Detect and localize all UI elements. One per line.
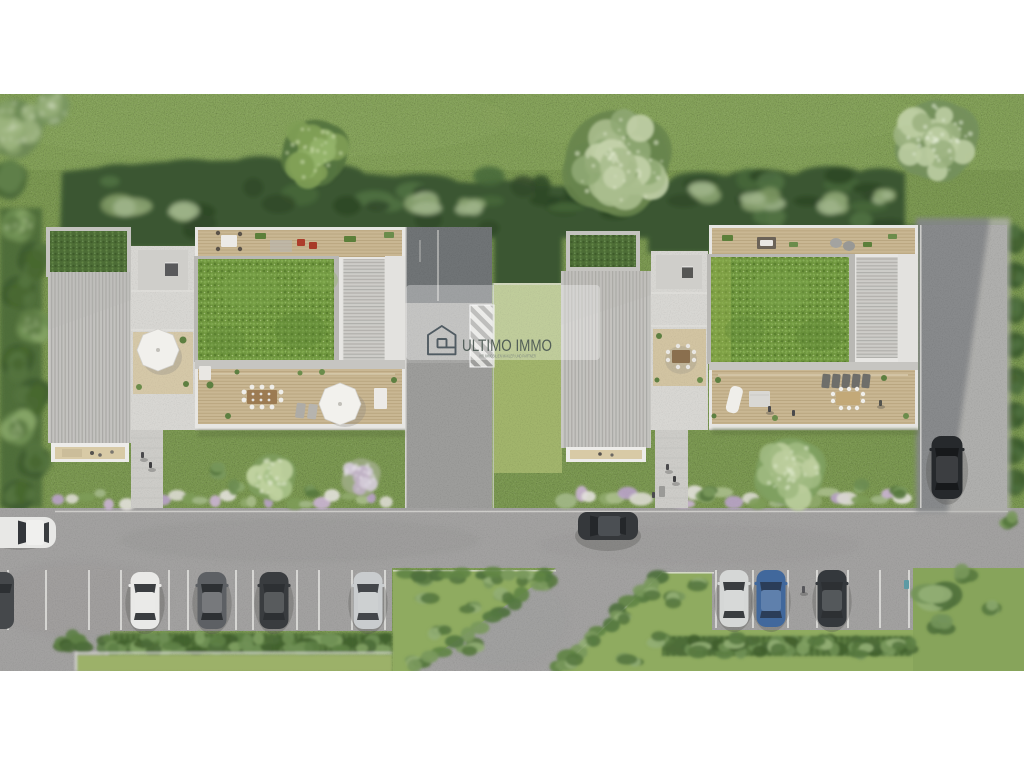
svg-text:ULTIMO IMMO: ULTIMO IMMO xyxy=(462,337,552,355)
svg-text:IHR IMMOBILIEN MAKLER UND PART: IHR IMMOBILIEN MAKLER UND PARTNER xyxy=(479,354,536,359)
